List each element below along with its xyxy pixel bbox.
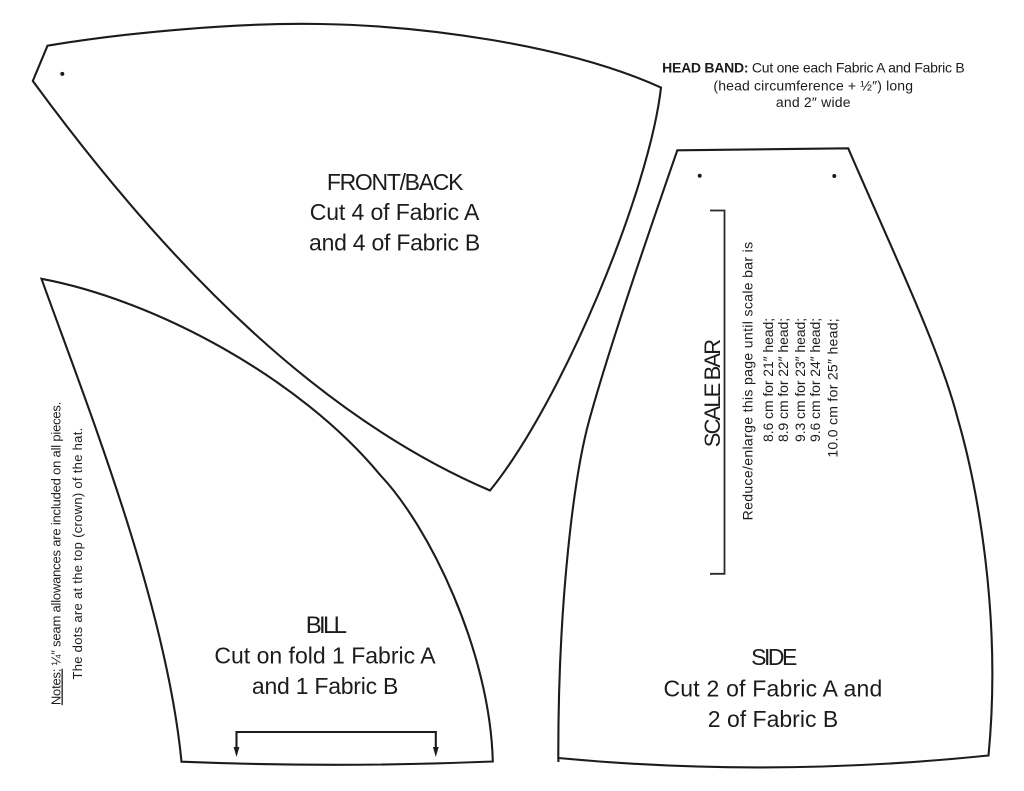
svg-text:HEAD BAND: Cut one each Fabri: HEAD BAND: Cut one each Fabric A and Fab…: [662, 60, 964, 76]
svg-text:and 2″ wide: and 2″ wide: [776, 94, 851, 110]
svg-text:BILL: BILL: [306, 612, 347, 639]
svg-text:Cut 4 of Fabric A: Cut 4 of Fabric A: [310, 199, 480, 225]
svg-text:Cut 2 of Fabric A and: Cut 2 of Fabric A and: [664, 676, 883, 702]
svg-text:8.9 cm for 22″ head;: 8.9 cm for 22″ head;: [775, 318, 791, 442]
svg-text:(head circumference + ½″) long: (head circumference + ½″) long: [713, 78, 913, 94]
svg-text:Notes: ¼″ seam allowances are: Notes: ¼″ seam allowances are included o…: [49, 402, 64, 705]
svg-text:SIDE: SIDE: [751, 644, 797, 670]
svg-text:Cut on fold 1 Fabric A: Cut on fold 1 Fabric A: [214, 643, 436, 669]
svg-text:The dots are at the top (crown: The dots are at the top (crown) of the h…: [70, 427, 85, 679]
svg-text:Reduce/enlarge this page unti: Reduce/enlarge this page until scale bar…: [740, 242, 756, 521]
svg-text:2 of Fabric B: 2 of Fabric B: [708, 706, 838, 732]
svg-text:10.0 cm for 25″ head;: 10.0 cm for 25″ head;: [824, 318, 840, 458]
svg-text:8.6 cm for 21″ head;: 8.6 cm for 21″ head;: [760, 318, 776, 442]
svg-text:and 4 of Fabric B: and 4 of Fabric B: [309, 230, 480, 256]
svg-text:9.6 cm for 24″ head;: 9.6 cm for 24″ head;: [807, 318, 823, 442]
svg-text:SCALE BAR: SCALE BAR: [700, 340, 725, 447]
svg-text:9.3 cm for 23″ head;: 9.3 cm for 23″ head;: [792, 318, 808, 442]
svg-text:and 1 Fabric B: and 1 Fabric B: [252, 673, 398, 699]
svg-text:FRONT/BACK: FRONT/BACK: [327, 169, 464, 195]
